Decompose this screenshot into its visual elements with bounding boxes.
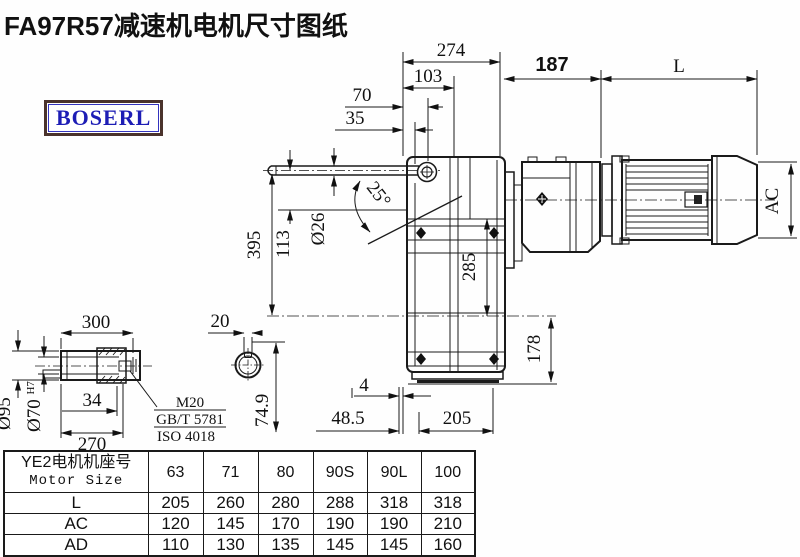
size-col: 90L [367,451,421,493]
note-iso-4018: ISO 4018 [157,429,215,445]
dim-AC: AC [762,188,783,214]
dim-74-9: 74.9 [252,394,273,427]
dim-70: 70 [353,85,372,106]
motor-side-view [505,156,775,244]
dim-diameter-26: Ø26 [308,213,329,246]
dim-25deg: 25° [362,178,395,212]
dim-113: 113 [273,230,294,258]
dim-diameter-70-tolerance: H7 [25,381,37,395]
table-row-AC: AC 120 145 170 190 190 210 [4,514,475,535]
size-col: 100 [421,451,475,493]
dim-diameter-70: Ø70 H7 [24,381,45,432]
row-label-AC: AC [4,514,148,535]
dim-34: 34 [83,390,103,411]
size-col: 80 [258,451,313,493]
dim-300: 300 [82,312,111,333]
header-motor-size: YE2电机机座号 Motor Size [4,451,148,493]
page: { "title": "FA97R57减速机电机尺寸图纸", "logo": "… [0,0,800,555]
size-col: 90S [313,451,367,493]
dim-L: L [673,56,685,77]
dim-274: 274 [437,40,466,61]
table-row-AD: AD 110 130 135 145 145 160 [4,535,475,557]
motor-size-table: YE2电机机座号 Motor Size 63 71 80 90S 90L 100… [3,450,476,557]
row-label-AD: AD [4,535,148,557]
note-m20: M20 [176,395,204,411]
dim-4: 4 [359,375,369,396]
dim-395: 395 [244,231,265,260]
dim-diameter-70-main: Ø70 [24,399,45,432]
dim-187: 187 [535,54,568,76]
shaft-detail-view [12,330,285,438]
table-row-header: YE2电机机座号 Motor Size 63 71 80 90S 90L 100 [4,451,475,493]
dim-48-5: 48.5 [331,408,364,429]
dim-20: 20 [211,311,230,332]
dim-35: 35 [346,108,365,129]
helical-gear-unit [505,157,600,268]
dim-178: 178 [524,335,545,364]
header-motor-size-cn: YE2电机机座号 [5,453,148,472]
header-motor-size-en: Motor Size [5,472,148,491]
size-col: 63 [148,451,203,493]
note-gbt-5781: GB/T 5781 [156,412,224,428]
dim-103: 103 [414,66,443,87]
table-row-L: L 205 260 280 288 318 318 [4,493,475,514]
dim-diameter-95: Ø95 [0,397,15,430]
hatching [99,348,125,383]
size-col: 71 [203,451,258,493]
gearbox-front-view [263,157,557,384]
row-label-L: L [4,493,148,514]
dim-285: 285 [459,253,480,282]
dim-205: 205 [443,408,472,429]
